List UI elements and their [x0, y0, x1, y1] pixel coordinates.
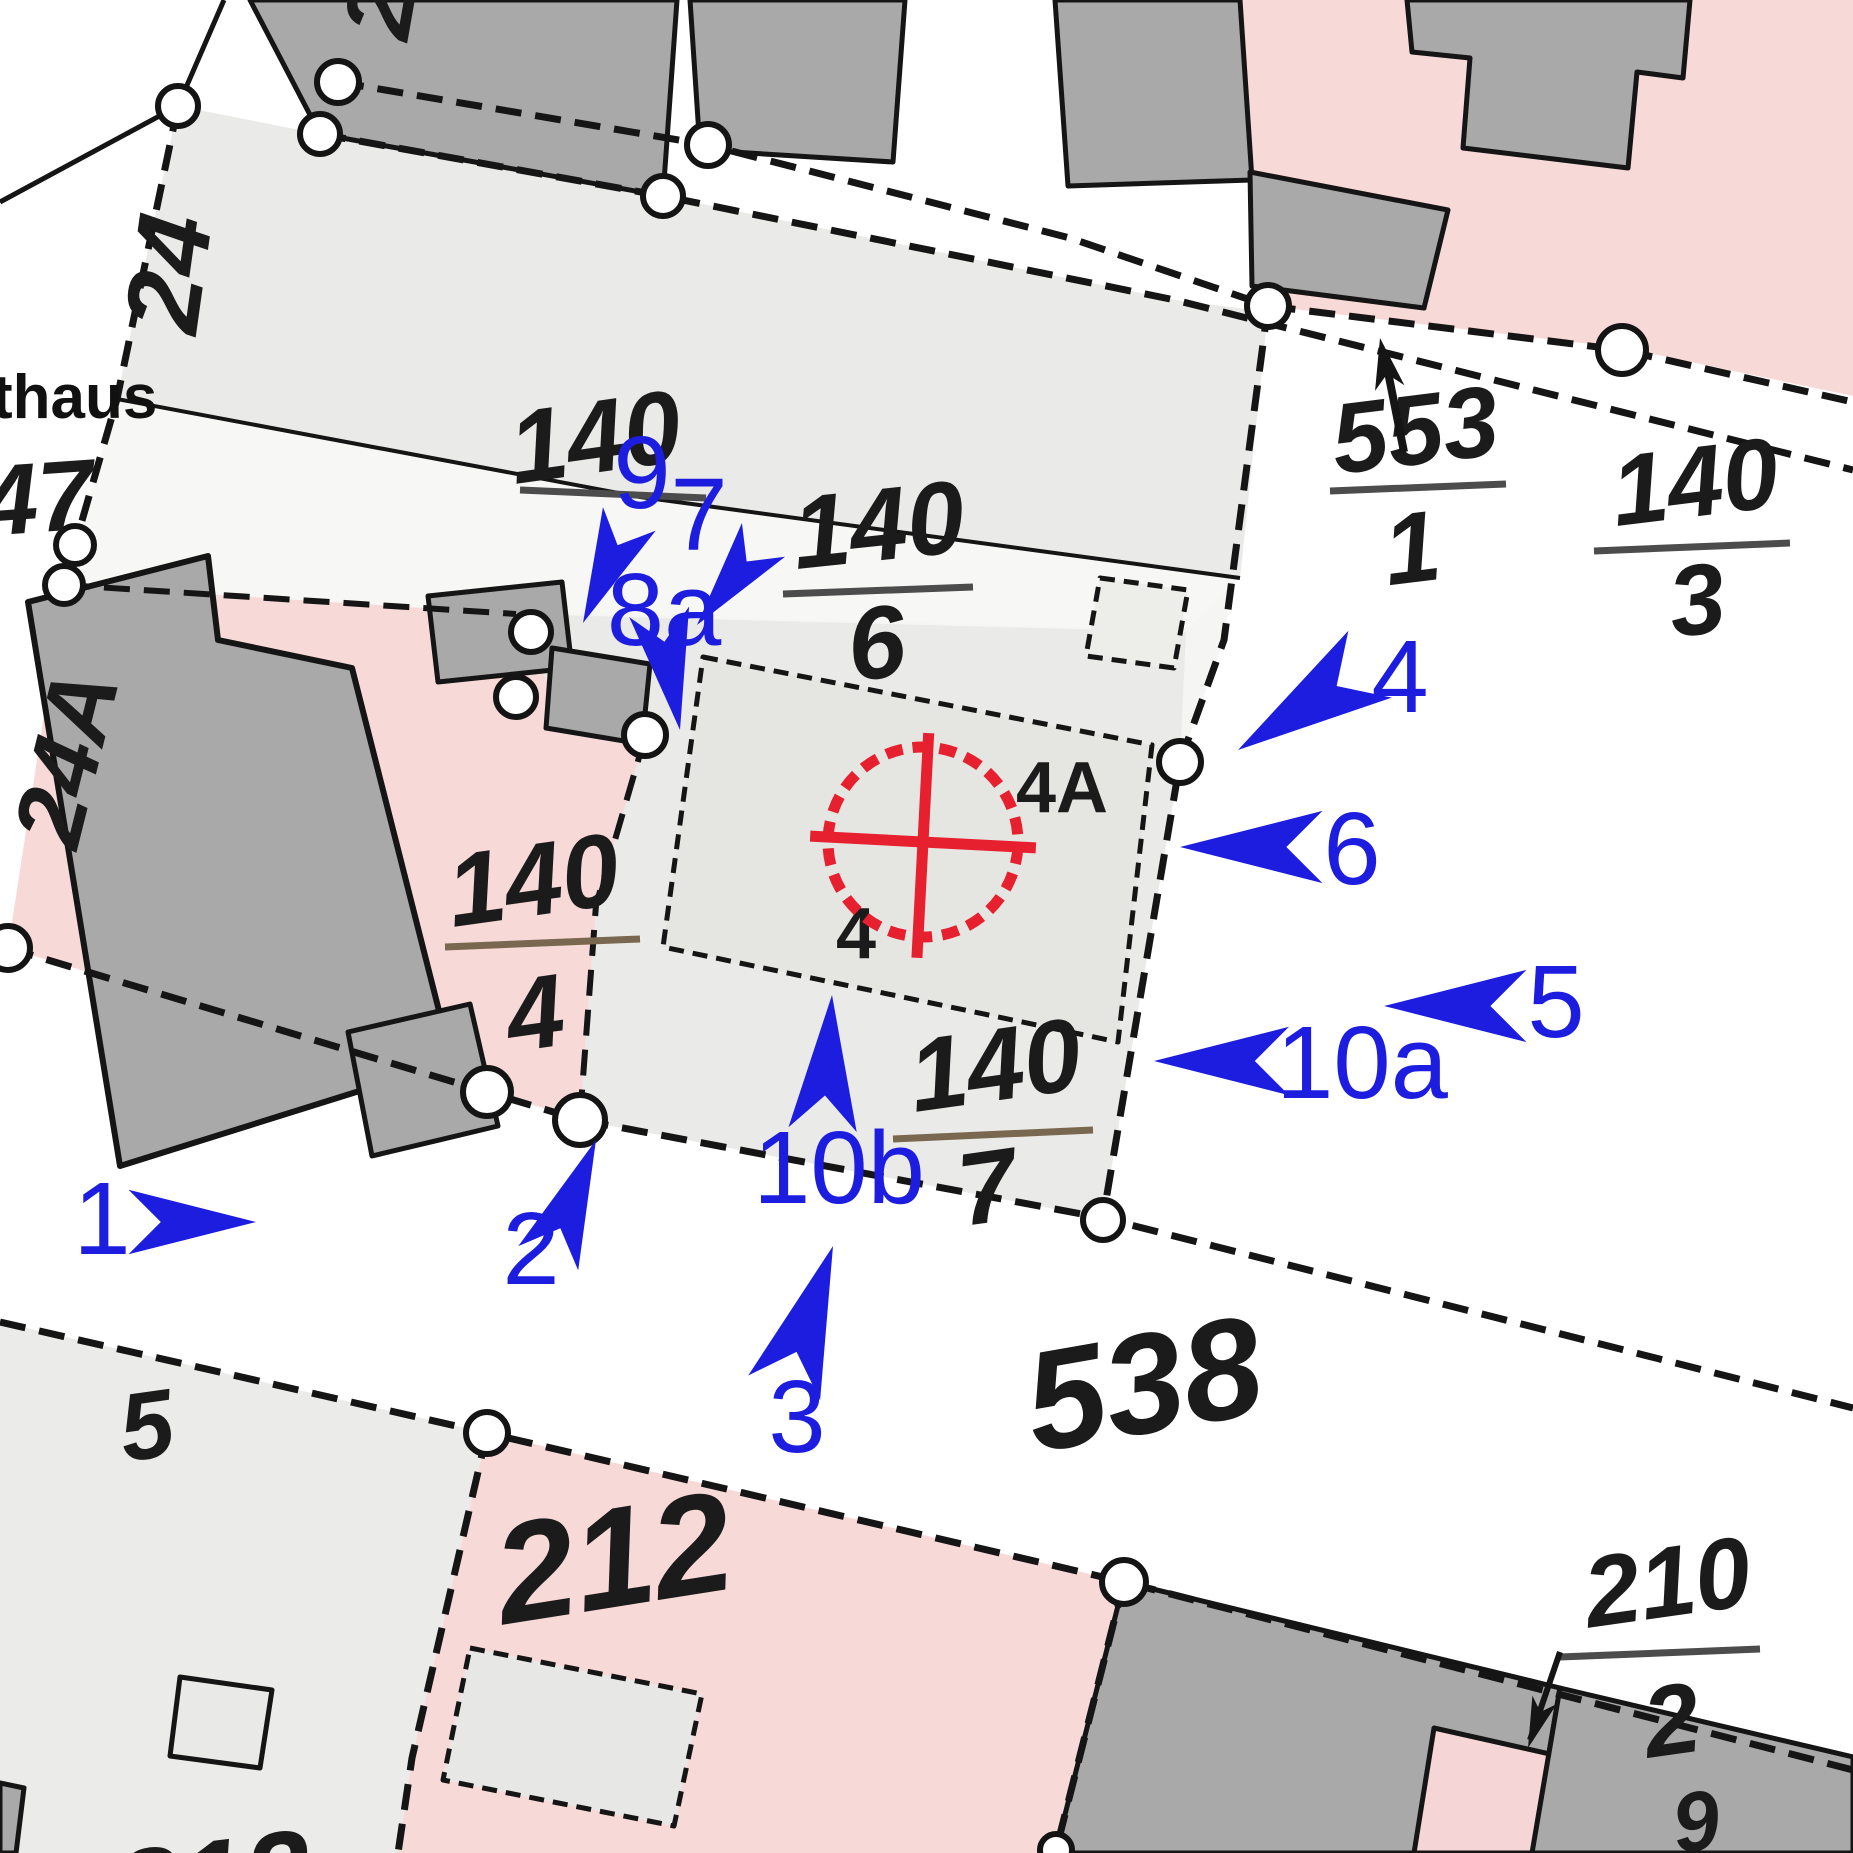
boundary-point	[511, 612, 551, 652]
parcel-label-140-3-den: 3	[1662, 541, 1731, 659]
boundary-point	[0, 926, 30, 970]
boundary-point	[687, 124, 729, 166]
annotation-label-5: 5	[1527, 944, 1584, 1059]
building-4a-annex	[1086, 578, 1188, 668]
parcel-label-24: 24	[103, 207, 235, 341]
annotation-label-10b: 10b	[753, 1110, 925, 1225]
parcel-label-553-1-num: 553	[1325, 365, 1504, 497]
annotation-label-1: 1	[73, 1161, 130, 1276]
annotation-arrow-1	[129, 1190, 257, 1255]
parcel-label-140-6-num: 140	[787, 459, 970, 591]
boundary-point	[643, 176, 683, 216]
annotation-label-9: 9	[613, 415, 670, 530]
building-top-dark	[1055, 0, 1252, 186]
building-boundary-annex	[170, 1677, 272, 1768]
boundary-point	[1159, 741, 1201, 783]
annotation-label-8a: 8a	[607, 552, 722, 667]
boundary-point	[300, 114, 340, 154]
parcel-label-210-2-num: 210	[1575, 1515, 1758, 1649]
map-canvas[interactable]: thaus 47 24 24A 140 140 6 553 1 140 3 14…	[0, 0, 1853, 1853]
boundary-point	[1247, 285, 1289, 327]
map-viewport: thaus 47 24 24A 140 140 6 553 1 140 3 14…	[0, 0, 1853, 1853]
boundary-point	[555, 1095, 605, 1145]
boundary-point	[1040, 1834, 1072, 1853]
label-rathaus-partial: thaus	[0, 363, 157, 432]
boundary-point	[466, 1412, 508, 1454]
boundary-point	[1598, 326, 1646, 374]
annotation-label-10a: 10a	[1276, 1005, 1449, 1120]
building-label-4a: 4A	[1016, 748, 1108, 828]
annotation-label-3: 3	[768, 1359, 825, 1474]
boundary-point	[1083, 1200, 1123, 1240]
annotation-arrow-4	[1216, 631, 1392, 784]
annotation-arrow-10a	[1154, 1027, 1289, 1095]
boundary-point	[1102, 1560, 1146, 1604]
boundary-point	[158, 86, 198, 126]
boundary-point	[496, 677, 536, 717]
parcel-label-140-7-num: 140	[902, 996, 1088, 1134]
parcel-label-210-2-bar	[1560, 1649, 1760, 1657]
boundary-point	[317, 61, 359, 103]
boundary-point	[463, 1068, 511, 1116]
parcel-label-538: 538	[1013, 1285, 1274, 1483]
annotation-label-2: 2	[502, 1191, 559, 1306]
label-house-47: 47	[0, 438, 101, 558]
parcel-label-553-1-den: 1	[1377, 489, 1446, 607]
annotation-label-6: 6	[1323, 791, 1380, 906]
parcel-label-140-3-num: 140	[1605, 417, 1784, 549]
parcel-label-140-4-num: 140	[440, 811, 626, 949]
boundary-point	[624, 714, 666, 756]
boundary-point	[45, 566, 83, 604]
annotation-label-4: 4	[1371, 619, 1428, 734]
annotation-arrow-6	[1180, 811, 1323, 883]
